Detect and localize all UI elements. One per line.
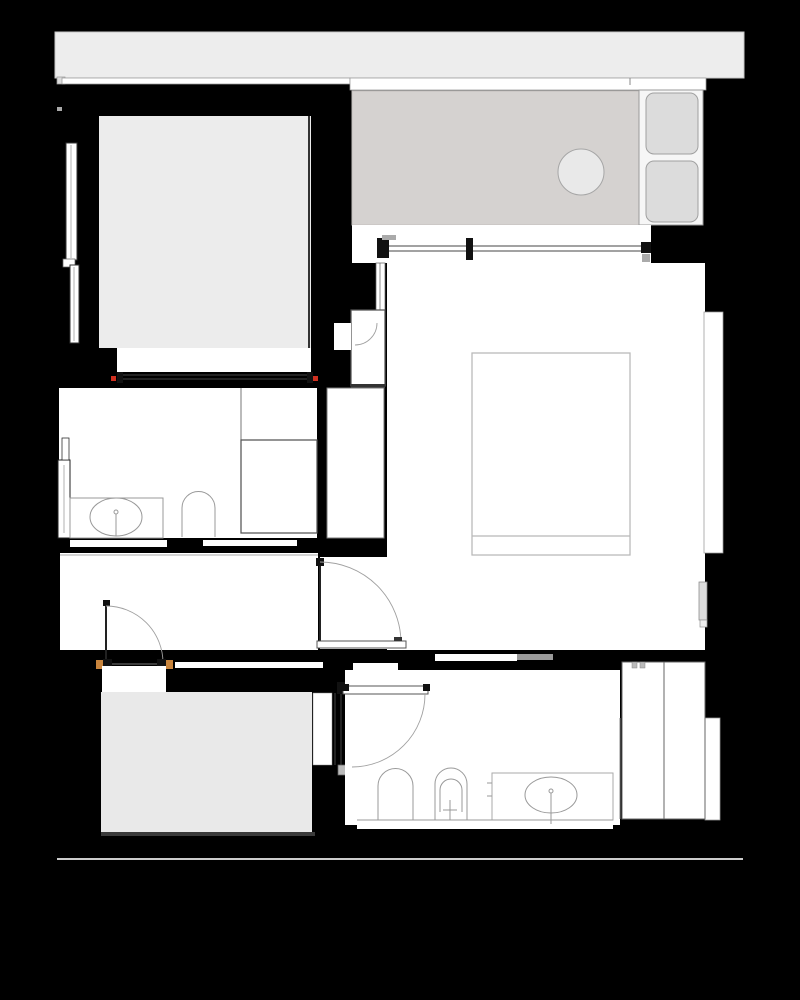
window-post-mid xyxy=(466,238,473,260)
shaft-column xyxy=(327,388,384,538)
right-wall-panel xyxy=(699,582,707,620)
shaft-strip-lower-left xyxy=(313,693,332,765)
terrace-top-left-floor xyxy=(99,116,311,348)
bathroom-1-sill-slot-b xyxy=(203,540,297,546)
walkway-band xyxy=(55,32,744,78)
red-marker-right xyxy=(313,376,318,381)
top-window-line-left xyxy=(62,78,350,84)
corridor-floor xyxy=(60,553,318,650)
toilet-2 xyxy=(378,769,413,820)
wall-slot-a xyxy=(353,663,398,670)
bathroom-2-door-hinge-left xyxy=(342,684,349,691)
hall-door-marker-right xyxy=(166,660,173,669)
lower-room-floor xyxy=(101,692,312,833)
left-facade-window-lower xyxy=(70,265,79,343)
window-post-left xyxy=(377,238,389,258)
closet-nook xyxy=(351,310,385,386)
wardrobe-left-door xyxy=(622,662,664,819)
terrace-window-post-left xyxy=(117,372,123,383)
right-shaft-lower xyxy=(705,718,720,820)
terrace-window-post-right xyxy=(307,372,313,383)
toilet-1 xyxy=(182,492,215,537)
entry-door-stop-mark xyxy=(394,637,402,641)
top-window-right xyxy=(350,78,706,90)
faucet-2 xyxy=(549,789,553,793)
window-post-right xyxy=(641,242,651,253)
terrace-sill-strip xyxy=(117,348,311,372)
basin-top xyxy=(646,93,698,154)
right-wall-small-box xyxy=(700,620,707,627)
wall-slot-gray xyxy=(517,654,553,660)
main-room-left-window xyxy=(376,263,385,310)
bathroom-1-window-upper xyxy=(62,438,69,460)
bathroom-1-sill-slot-a xyxy=(70,540,167,547)
wall-niche xyxy=(334,323,351,350)
window-post-right-mark xyxy=(642,254,650,262)
wall-slot-b xyxy=(435,654,517,661)
closet-nook-sill xyxy=(351,384,385,388)
red-marker-left xyxy=(111,376,116,381)
hall-door-marker-left xyxy=(96,660,103,669)
lower-wall-slot xyxy=(175,662,323,668)
hall-door-hinge xyxy=(103,600,110,606)
right-shaft-upper xyxy=(704,312,723,553)
basin-bottom xyxy=(646,161,698,222)
bathroom-2-door-hinge-right xyxy=(423,684,430,691)
round-table xyxy=(558,149,604,195)
floor-plan xyxy=(0,0,800,1000)
window-post-left-mark xyxy=(382,235,396,240)
lower-room-door-gap xyxy=(102,666,166,692)
left-facade-window-upper xyxy=(66,143,77,260)
entry-door-threshold xyxy=(317,641,406,648)
shower-1 xyxy=(241,440,317,533)
window-bay-floor xyxy=(352,225,651,263)
bathroom-2-door-leaf xyxy=(343,686,428,694)
faucet-1 xyxy=(114,510,118,514)
floor-plan-svg xyxy=(0,0,800,1000)
bed xyxy=(472,353,630,555)
wall-mark-dot xyxy=(57,107,62,111)
wardrobe-hinge-a xyxy=(632,662,637,668)
wardrobe-hinge-b xyxy=(640,662,645,668)
entry-junction-floor xyxy=(320,557,390,649)
wardrobe-right-door xyxy=(664,662,705,819)
